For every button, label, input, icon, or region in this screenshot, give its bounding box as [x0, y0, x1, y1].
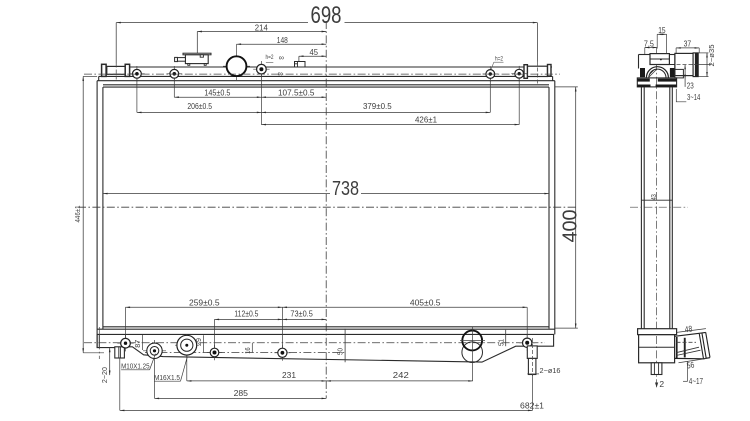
svg-text:15: 15 — [658, 25, 666, 35]
svg-text:400: 400 — [559, 210, 581, 243]
svg-text:446±1: 446±1 — [75, 205, 82, 222]
svg-text:h=2: h=2 — [495, 56, 503, 63]
svg-text:4~17: 4~17 — [689, 377, 704, 386]
svg-text:259±0.5: 259±0.5 — [189, 298, 220, 307]
svg-text:426±1: 426±1 — [415, 116, 438, 125]
svg-text:2: 2 — [659, 379, 664, 389]
svg-text:73±0.5: 73±0.5 — [290, 310, 313, 319]
svg-text:107.5±0.5: 107.5±0.5 — [278, 89, 315, 98]
svg-text:M10X1.25: M10X1.25 — [121, 361, 150, 370]
svg-text:3~14: 3~14 — [687, 93, 701, 102]
svg-text:206±0.5: 206±0.5 — [187, 102, 212, 111]
svg-text:∞: ∞ — [278, 69, 283, 78]
svg-text:51: 51 — [498, 339, 505, 346]
svg-text:379±0.5: 379±0.5 — [363, 102, 392, 111]
svg-text:50: 50 — [338, 348, 345, 355]
svg-text:145±0.5: 145±0.5 — [204, 89, 230, 98]
svg-text:242: 242 — [393, 371, 410, 380]
svg-text:231: 231 — [282, 371, 297, 380]
svg-text:7.5: 7.5 — [644, 39, 654, 49]
svg-text:2~ø16: 2~ø16 — [540, 366, 561, 375]
svg-text:148: 148 — [277, 36, 288, 45]
svg-text:23: 23 — [687, 80, 694, 90]
svg-text:∞: ∞ — [279, 53, 284, 62]
svg-text:112±0.5: 112±0.5 — [234, 310, 258, 319]
svg-text:2~ø35: 2~ø35 — [707, 45, 716, 67]
svg-text:37: 37 — [684, 38, 692, 48]
svg-text:48: 48 — [684, 323, 693, 334]
svg-text:45: 45 — [310, 48, 319, 57]
svg-text:682±1: 682±1 — [520, 402, 545, 411]
svg-text:h=2: h=2 — [266, 54, 274, 61]
svg-text:285: 285 — [234, 389, 249, 398]
svg-text:738: 738 — [332, 178, 359, 200]
svg-text:87: 87 — [135, 340, 142, 348]
svg-text:2~20: 2~20 — [102, 367, 109, 383]
svg-text:405±0.5: 405±0.5 — [410, 298, 441, 307]
svg-text:16: 16 — [245, 347, 252, 354]
svg-text:214: 214 — [255, 23, 269, 32]
svg-text:M16X1.5: M16X1.5 — [154, 373, 180, 382]
